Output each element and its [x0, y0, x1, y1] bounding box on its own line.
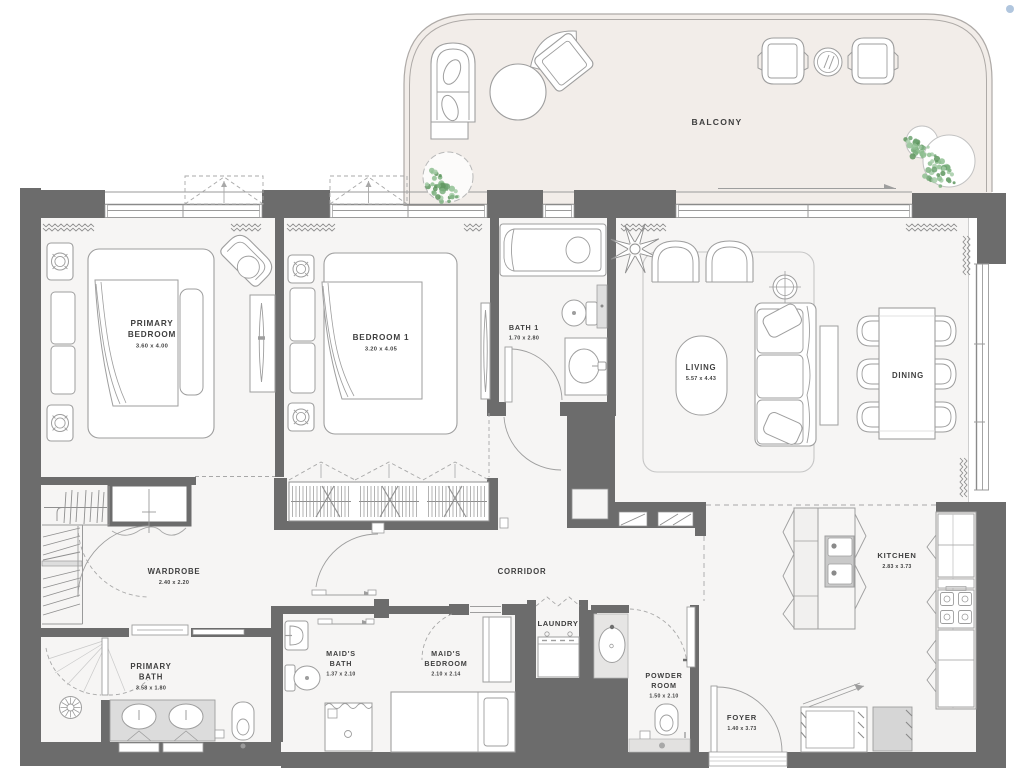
svg-text:CORRIDOR: CORRIDOR — [498, 567, 547, 576]
svg-text:POWDER: POWDER — [645, 671, 682, 680]
svg-text:KITCHEN: KITCHEN — [877, 551, 916, 560]
svg-text:1.70 x 2.80: 1.70 x 2.80 — [509, 336, 539, 342]
svg-text:DINING: DINING — [892, 371, 924, 380]
svg-text:1.37 x 2.10: 1.37 x 2.10 — [326, 672, 355, 678]
svg-text:1.40 x 3.73: 1.40 x 3.73 — [727, 726, 756, 732]
svg-text:2.10 x 2.14: 2.10 x 2.14 — [431, 672, 460, 678]
svg-text:PRIMARY: PRIMARY — [130, 662, 171, 671]
svg-text:LAUNDRY: LAUNDRY — [537, 619, 578, 628]
svg-text:1.50 x 2.10: 1.50 x 2.10 — [649, 694, 678, 700]
svg-text:3.58 x 1.80: 3.58 x 1.80 — [136, 686, 166, 692]
svg-text:MAID'S: MAID'S — [326, 649, 356, 658]
svg-text:FOYER: FOYER — [727, 713, 757, 722]
svg-text:WARDROBE: WARDROBE — [148, 567, 201, 576]
svg-text:3.20 x 4.05: 3.20 x 4.05 — [365, 347, 398, 353]
svg-text:BEDROOM: BEDROOM — [128, 330, 176, 339]
svg-text:BALCONY: BALCONY — [692, 117, 743, 127]
svg-text:LIVING: LIVING — [686, 363, 717, 372]
svg-text:BATH: BATH — [139, 673, 163, 682]
svg-text:BEDROOM: BEDROOM — [424, 659, 467, 668]
svg-text:BATH: BATH — [330, 659, 353, 668]
svg-text:5.57 x 4.43: 5.57 x 4.43 — [686, 376, 716, 382]
svg-text:2.40 x 2.20: 2.40 x 2.20 — [159, 580, 189, 586]
svg-text:BEDROOM 1: BEDROOM 1 — [353, 333, 410, 342]
svg-text:2.83 x 3.73: 2.83 x 3.73 — [882, 564, 911, 570]
svg-text:MAID'S: MAID'S — [431, 649, 461, 658]
svg-text:PRIMARY: PRIMARY — [130, 319, 173, 328]
svg-text:BATH 1: BATH 1 — [509, 323, 539, 332]
svg-text:3.60 x 4.00: 3.60 x 4.00 — [136, 344, 168, 350]
svg-text:ROOM: ROOM — [651, 681, 677, 690]
